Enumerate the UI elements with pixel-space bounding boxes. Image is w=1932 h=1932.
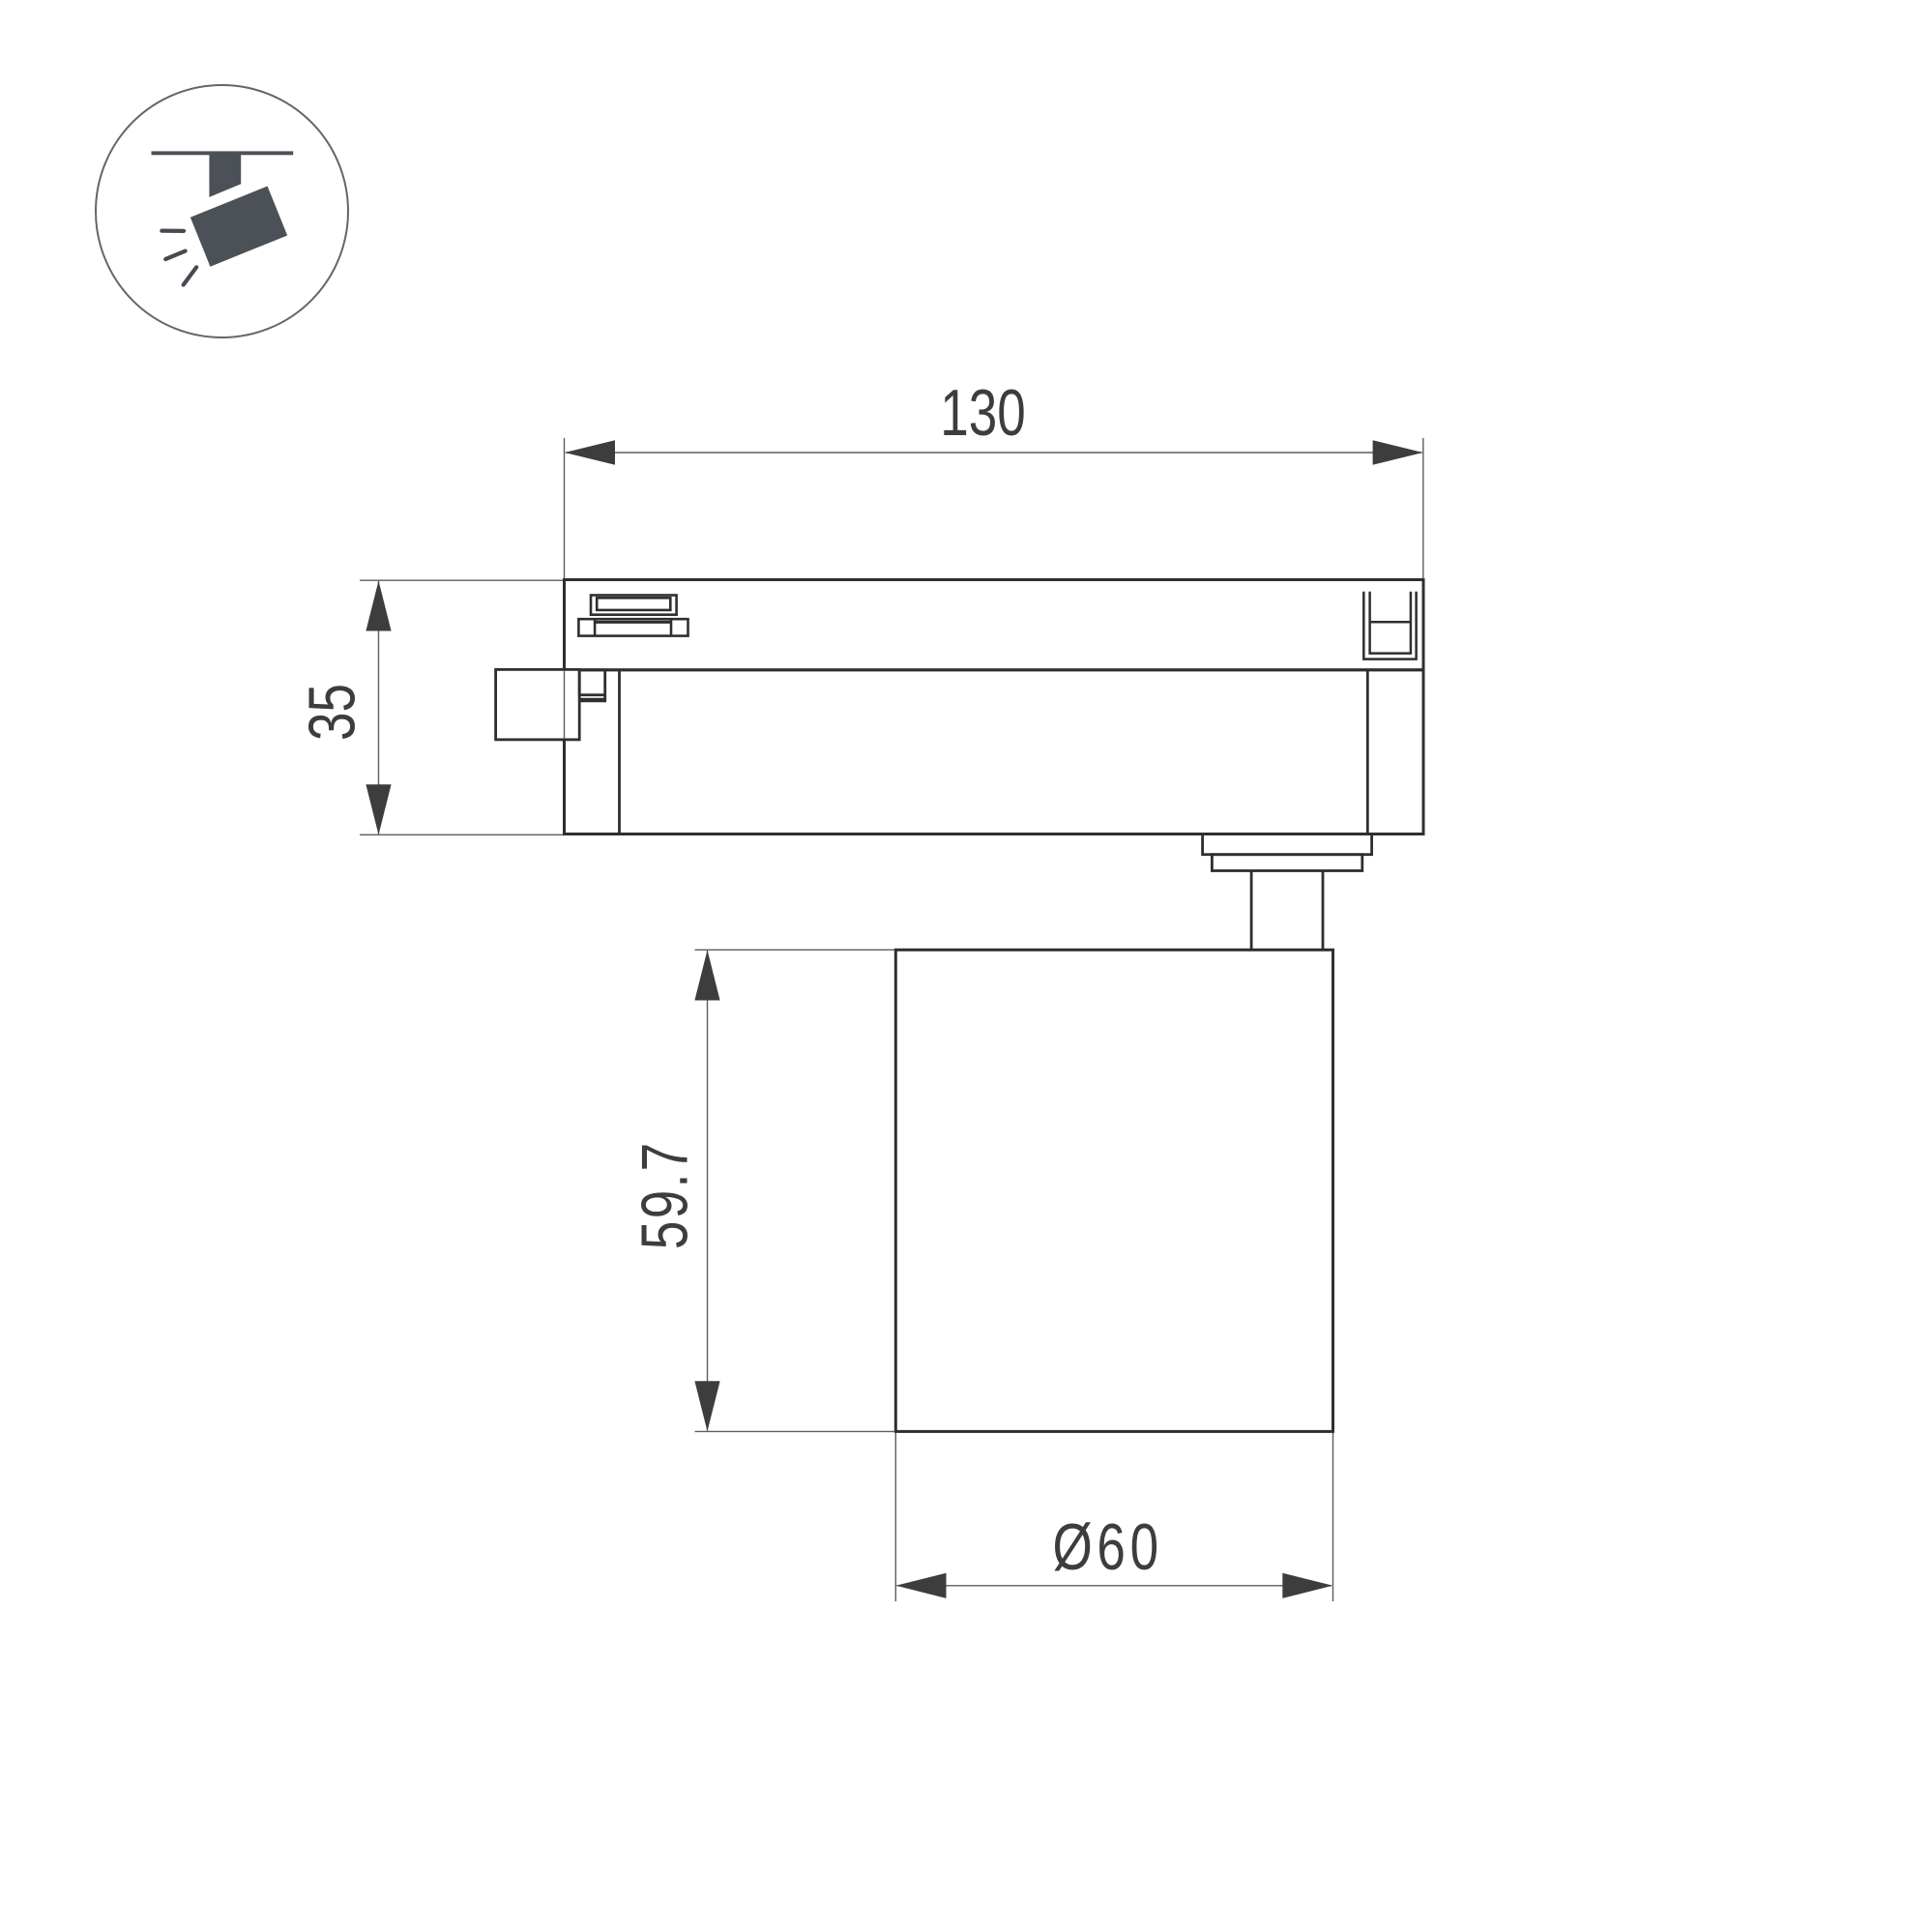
svg-text:Ø60: Ø60 [1052,1509,1162,1583]
svg-text:35: 35 [295,684,368,741]
svg-text:130: 130 [940,376,1025,450]
svg-text:59.7: 59.7 [628,1141,701,1250]
